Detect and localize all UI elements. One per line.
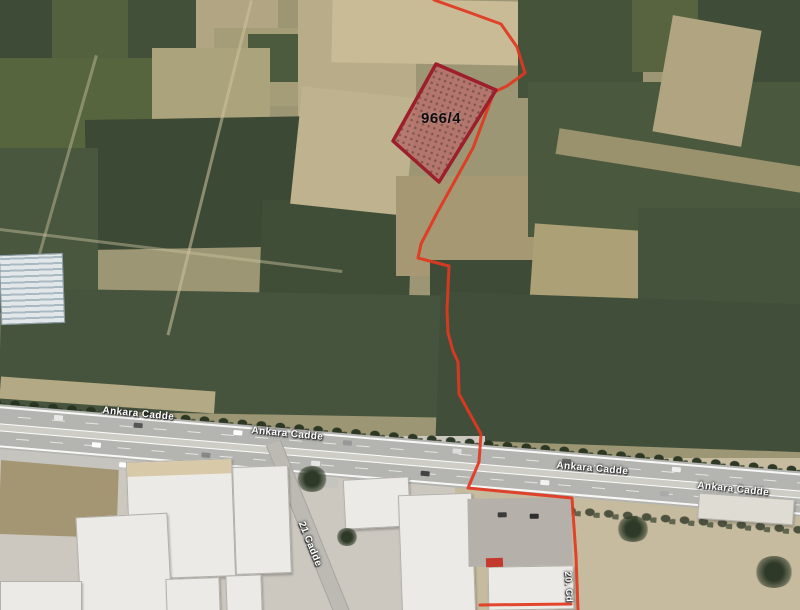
vehicle — [343, 440, 352, 445]
vehicle — [452, 448, 461, 453]
red-roof-structure — [486, 558, 503, 568]
parcel-label: 966/4 — [421, 110, 461, 127]
tree-cluster — [296, 466, 328, 492]
vehicle — [311, 461, 320, 466]
building — [0, 581, 82, 610]
vehicle — [530, 514, 539, 519]
field-patch — [331, 0, 532, 66]
orchard-patch — [436, 292, 800, 453]
building — [398, 493, 476, 610]
road-label-20-cd: 20. Cd — [562, 571, 575, 602]
vehicle — [201, 452, 210, 457]
map-canvas[interactable]: 966/4 Ankara Cadde Ankara Cadde Ankara C… — [0, 0, 800, 610]
gray-lot — [467, 497, 572, 567]
roof-strip — [127, 459, 231, 477]
vehicle — [92, 442, 101, 447]
vehicle — [134, 423, 143, 428]
greenhouse-building — [0, 253, 65, 325]
building — [165, 577, 220, 610]
vehicle — [54, 415, 63, 420]
tree-cluster — [754, 556, 794, 588]
vehicle — [233, 430, 242, 435]
building — [75, 513, 172, 610]
building — [225, 574, 262, 610]
vehicle — [498, 512, 507, 517]
building — [232, 465, 292, 575]
vehicle — [540, 480, 549, 485]
tree-cluster — [616, 516, 650, 542]
tree-cluster — [336, 528, 358, 546]
vehicle — [420, 471, 429, 476]
vehicle — [660, 491, 669, 496]
vehicle — [672, 467, 681, 472]
